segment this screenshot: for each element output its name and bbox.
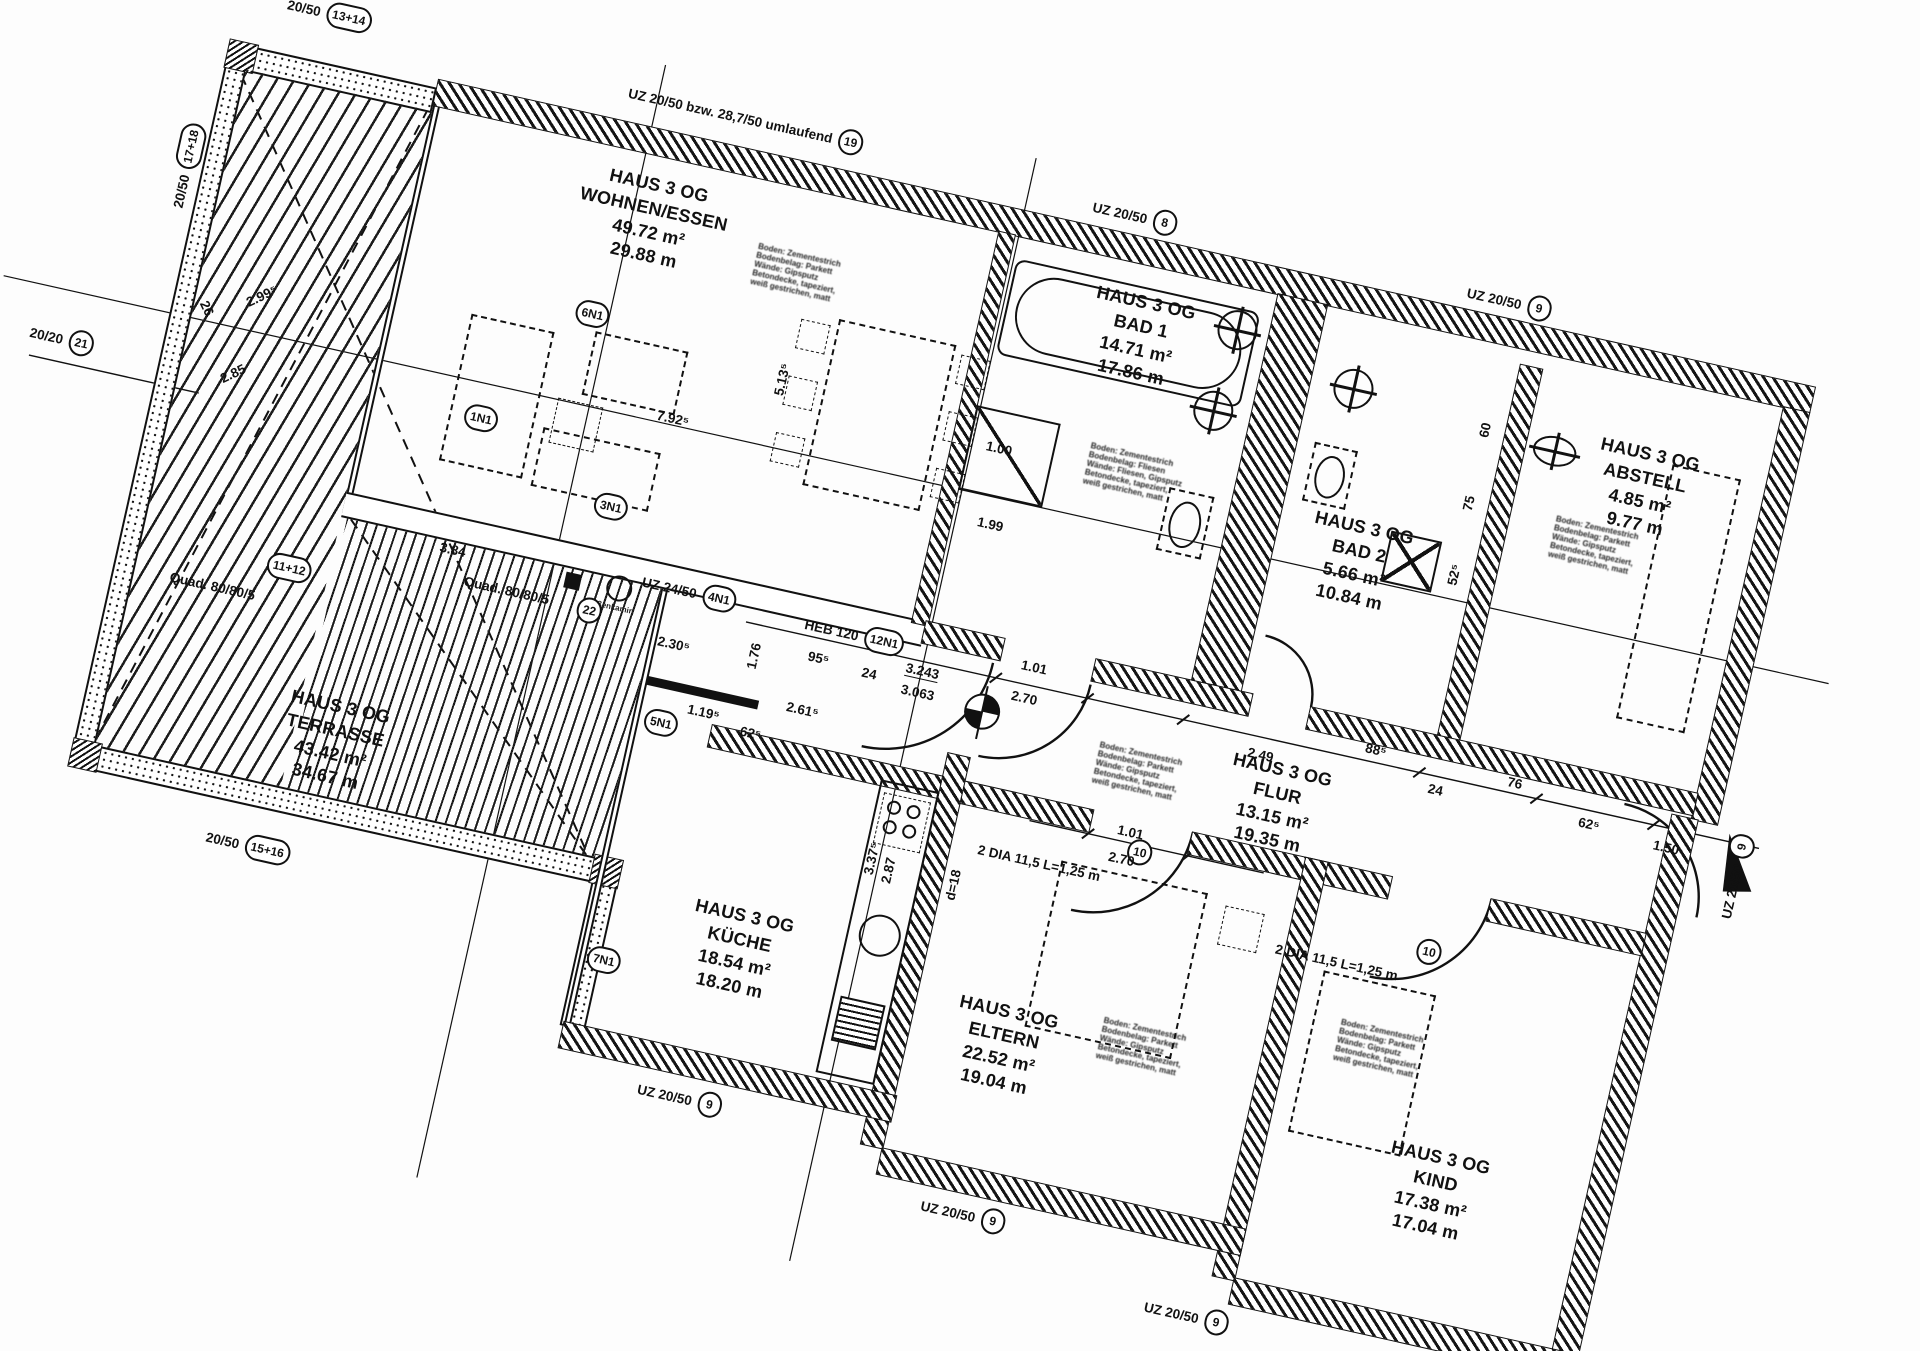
washing-machine [1380, 531, 1442, 593]
dim: 60 [1476, 421, 1494, 439]
chair [955, 355, 991, 391]
dim: 75 [1460, 494, 1478, 512]
floorplan-page: HAUS 3 OG WOHNEN/ESSEN 49.72 m² 29.88 m … [0, 0, 1920, 1351]
corner-block-nw [225, 40, 258, 73]
pos-circle: 19 [835, 127, 865, 158]
chair [770, 432, 806, 468]
chair [795, 319, 831, 355]
coffee-table [548, 398, 603, 453]
door-arc-bad2 [1252, 636, 1324, 708]
nightstand [1217, 905, 1265, 953]
steel-column [563, 572, 582, 591]
floorplan-drawing: HAUS 3 OG WOHNEN/ESSEN 49.72 m² 29.88 m … [0, 20, 1875, 1351]
dim: 24 [1427, 781, 1445, 799]
oven [831, 996, 886, 1051]
beam-label-13-14: 20/50 13+14 [285, 0, 374, 35]
dim: 76 [1506, 774, 1524, 792]
dim: 24 [860, 665, 878, 683]
beam-label-21: 20/20 21 [27, 319, 96, 359]
